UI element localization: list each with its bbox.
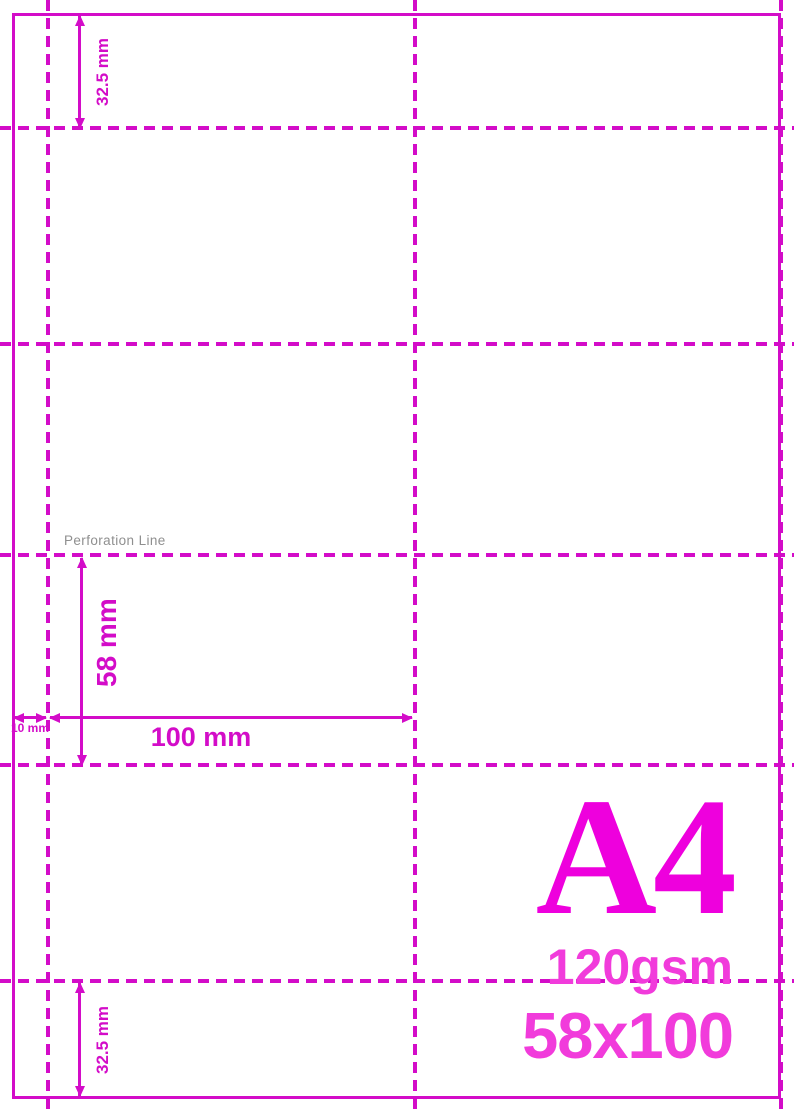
top-margin-dimension-label: 32.5 mm bbox=[94, 16, 111, 128]
perforation-line-vertical-3 bbox=[779, 0, 783, 1114]
perforation-line-vertical-2 bbox=[413, 0, 417, 1114]
perforation-line-horizontal-3 bbox=[0, 553, 794, 557]
perforation-line-horizontal-1 bbox=[0, 126, 794, 130]
label-sheet-template: 32.5 mm 58 mm 32.5 mm 10 mm 100 mm Perfo… bbox=[0, 0, 794, 1114]
cell-width-dimension-label: 100 mm bbox=[146, 722, 256, 753]
paper-format-title: A4 bbox=[536, 782, 733, 932]
cell-height-dimension-arrow bbox=[80, 558, 83, 765]
label-size-label: 58x100 bbox=[522, 1005, 733, 1067]
perforation-line-vertical-1 bbox=[46, 0, 50, 1114]
top-margin-dimension-arrow bbox=[78, 16, 81, 128]
side-margin-dimension-arrow bbox=[14, 716, 46, 719]
perforation-line-horizontal-2 bbox=[0, 342, 794, 346]
side-margin-dimension-label: 10 mm bbox=[11, 721, 49, 735]
bottom-margin-dimension-arrow bbox=[78, 983, 81, 1096]
bottom-margin-dimension-label: 32.5 mm bbox=[94, 984, 111, 1096]
cell-height-dimension-label: 58 mm bbox=[93, 560, 121, 725]
paper-weight-label: 120gsm bbox=[547, 942, 733, 992]
perforation-line-label: Perforation Line bbox=[64, 533, 166, 548]
